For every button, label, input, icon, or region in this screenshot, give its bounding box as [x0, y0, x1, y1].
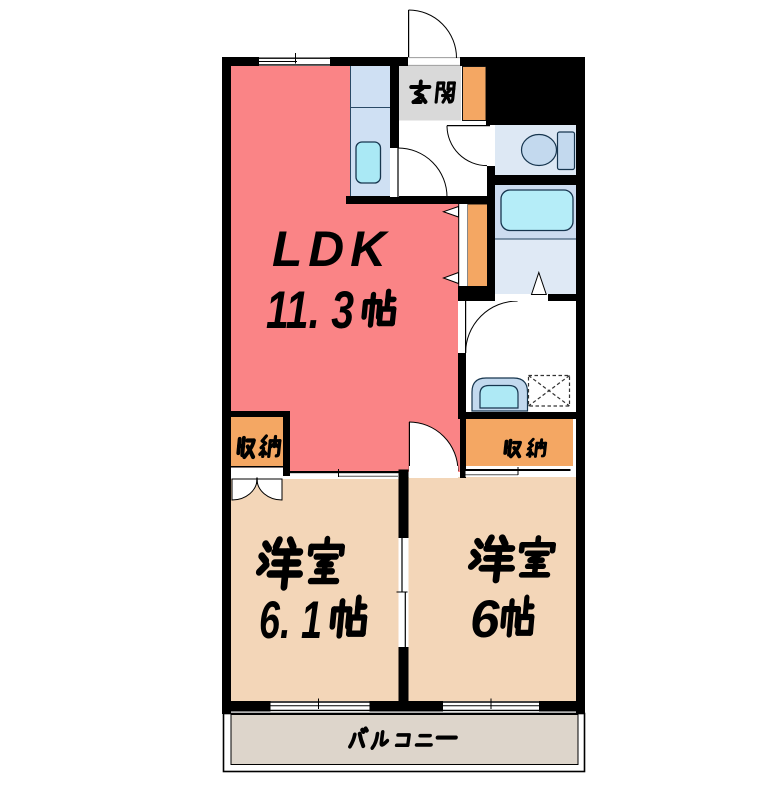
svg-text:LDK: LDK: [272, 221, 392, 277]
svg-text:6. 1: 6. 1: [259, 591, 322, 650]
svg-text:6: 6: [470, 590, 500, 649]
svg-text:11. 3: 11. 3: [266, 281, 354, 340]
